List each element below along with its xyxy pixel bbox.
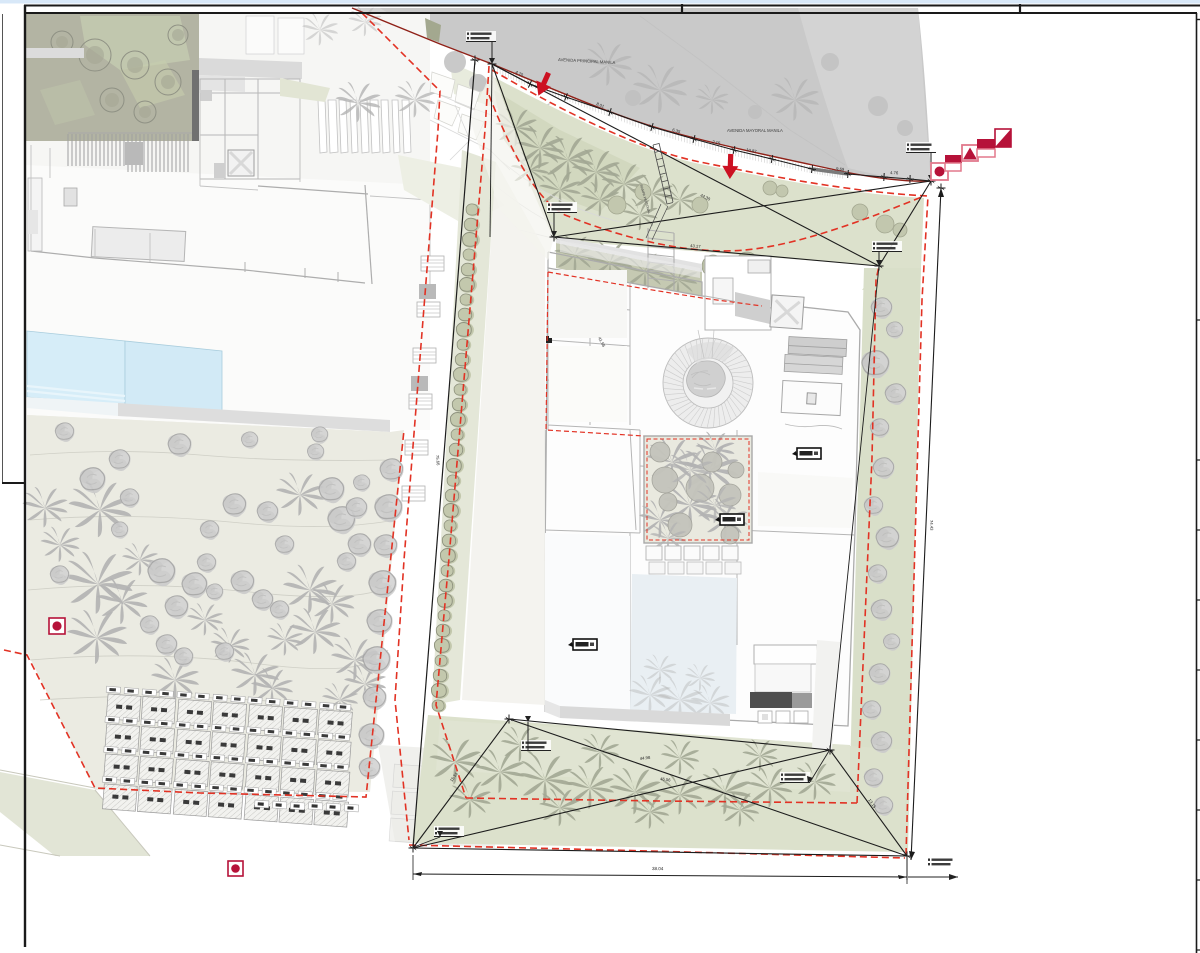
svg-text:4.76: 4.76 xyxy=(890,170,899,175)
svg-text:AVENIDA MAYORAL MANILA: AVENIDA MAYORAL MANILA xyxy=(727,128,783,133)
svg-text:38.04: 38.04 xyxy=(652,866,664,871)
svg-text:9.69: 9.69 xyxy=(836,166,845,172)
svg-text:74.43: 74.43 xyxy=(929,520,934,531)
svg-text:75.66: 75.66 xyxy=(435,455,441,466)
